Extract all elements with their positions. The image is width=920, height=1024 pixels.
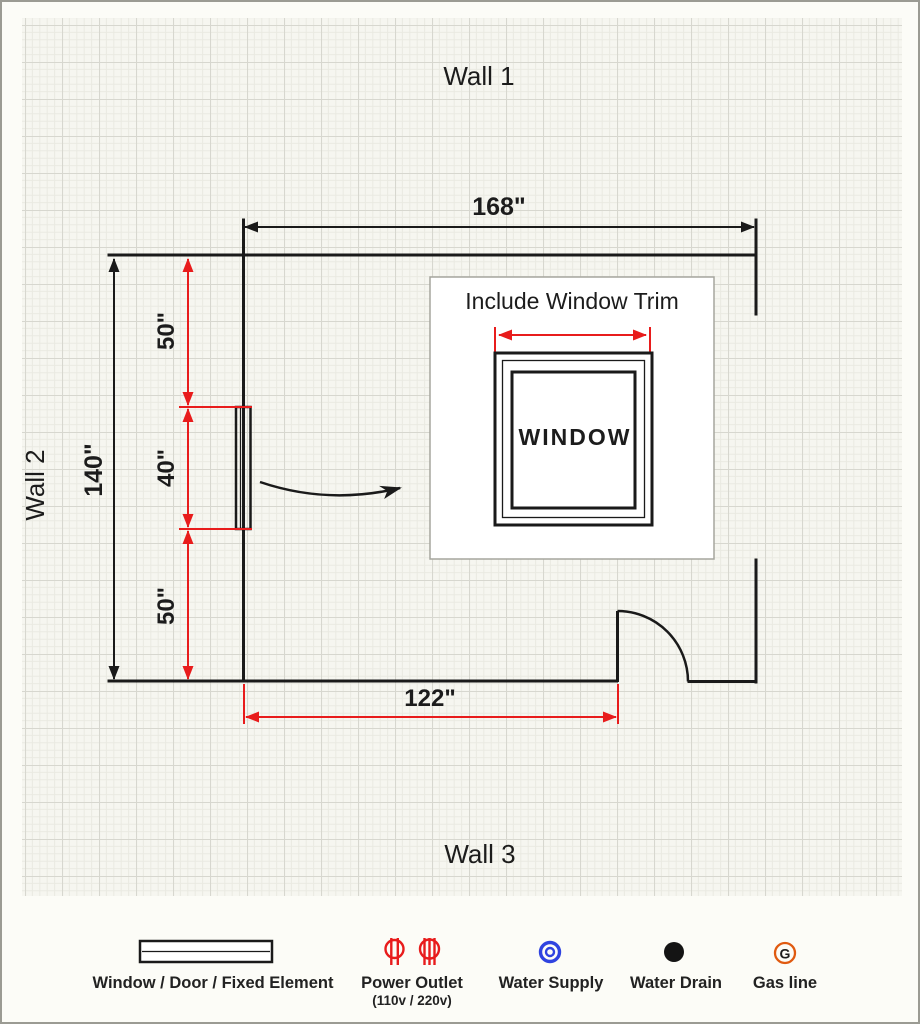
dim-label-50-lower: 50" <box>153 587 180 625</box>
legend-label-water-supply: Water Supply <box>499 974 605 992</box>
wall-1-label: Wall 1 <box>443 61 514 91</box>
power-outlet-icon <box>386 938 440 965</box>
outlet-110v-icon <box>386 940 404 958</box>
inset-window-label: WINDOW <box>519 424 632 450</box>
dim-label-40: 40" <box>153 449 180 487</box>
dim-label-50-upper: 50" <box>153 312 180 350</box>
legend: Window / Door / Fixed Element Power Outl… <box>93 938 818 1008</box>
legend-label-window-door: Window / Door / Fixed Element <box>93 974 334 992</box>
gas-line-icon-letter: G <box>780 946 791 962</box>
window-door-symbol <box>140 941 272 962</box>
legend-item-gas-line: G Gas line <box>753 943 817 992</box>
floor-plan-drawing: Include Window Trim WINDOW Wall 1 Wall 2… <box>2 2 920 1024</box>
dim-label-140: 140" <box>80 443 108 497</box>
window-trim-inset: Include Window Trim WINDOW <box>430 277 714 559</box>
water-supply-outer-ring <box>541 943 560 962</box>
legend-label-water-drain: Water Drain <box>630 974 722 992</box>
wall-3-label: Wall 3 <box>444 839 515 869</box>
water-drain-icon <box>664 942 684 962</box>
legend-label-gas-line: Gas line <box>753 974 817 992</box>
legend-item-window-door: Window / Door / Fixed Element <box>93 941 334 992</box>
outlet-220v-prongs <box>425 938 435 965</box>
dim-label-122: 122" <box>404 685 455 712</box>
legend-item-water-drain: Water Drain <box>630 942 722 992</box>
water-supply-icon <box>541 943 560 962</box>
dim-label-168: 168" <box>472 193 526 221</box>
legend-item-power-outlet: Power Outlet (110v / 220v) <box>361 938 463 1008</box>
inset-title: Include Window Trim <box>465 288 678 314</box>
water-supply-inner-ring <box>546 948 554 956</box>
outlet-110v-prongs <box>391 938 398 965</box>
wall-2-label: Wall 2 <box>20 449 50 520</box>
legend-sublabel-voltage: (110v / 220v) <box>372 993 452 1008</box>
floor-plan-page: Include Window Trim WINDOW Wall 1 Wall 2… <box>0 0 920 1024</box>
legend-item-water-supply: Water Supply <box>499 943 605 993</box>
legend-label-power-outlet: Power Outlet <box>361 974 463 992</box>
